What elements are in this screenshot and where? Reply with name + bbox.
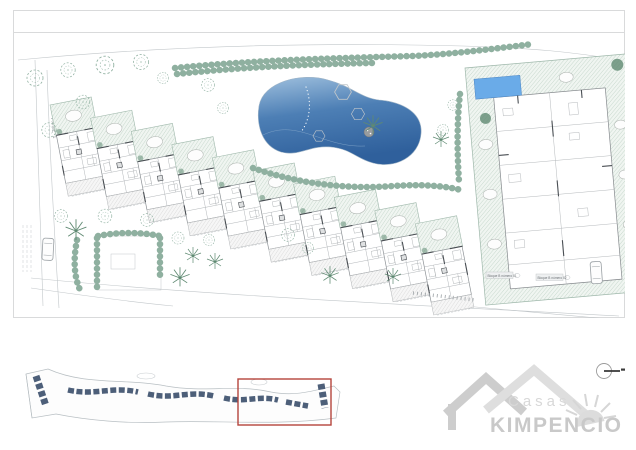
block-label: Bloque B número 02 bbox=[538, 276, 567, 280]
block-label: Bloque B número 01 bbox=[488, 274, 517, 278]
tree-icon bbox=[203, 234, 214, 245]
compass-marker-icon bbox=[597, 364, 626, 379]
palm-tree-icon bbox=[185, 247, 201, 263]
tree-icon bbox=[27, 70, 43, 86]
car-icon bbox=[590, 261, 603, 284]
palm-tree-icon bbox=[170, 267, 189, 286]
car-icon bbox=[42, 238, 54, 261]
palm-tree-icon bbox=[207, 253, 223, 269]
drawing-sheet: FASE 1 bbox=[0, 0, 636, 450]
tree-icon bbox=[202, 79, 215, 92]
logo-brand-main: KIMPENCIO bbox=[490, 414, 623, 437]
tree-icon bbox=[98, 209, 112, 223]
tree-icon bbox=[96, 56, 114, 74]
palm-tree-icon bbox=[66, 219, 87, 240]
hedge-row bbox=[458, 94, 460, 182]
logo: Casas KIMPENCIO bbox=[440, 358, 636, 446]
key-plan bbox=[16, 362, 352, 442]
block-pool bbox=[474, 75, 522, 99]
logo-brand-top: Casas bbox=[508, 393, 571, 410]
tree-icon bbox=[61, 63, 75, 77]
site-plan-drawing: FASE 1 bbox=[13, 10, 625, 318]
tree-icon bbox=[217, 102, 228, 113]
tree-icon bbox=[437, 124, 448, 135]
townhouse-unit bbox=[415, 216, 474, 316]
tree-icon bbox=[55, 210, 68, 223]
swimming-pool bbox=[258, 77, 421, 164]
tree-icon bbox=[133, 54, 148, 69]
hedge-row bbox=[75, 240, 81, 292]
tree-icon bbox=[172, 232, 184, 244]
palm-tree-icon bbox=[433, 131, 449, 147]
tree-icon bbox=[157, 72, 168, 83]
hedge-row bbox=[98, 233, 160, 236]
